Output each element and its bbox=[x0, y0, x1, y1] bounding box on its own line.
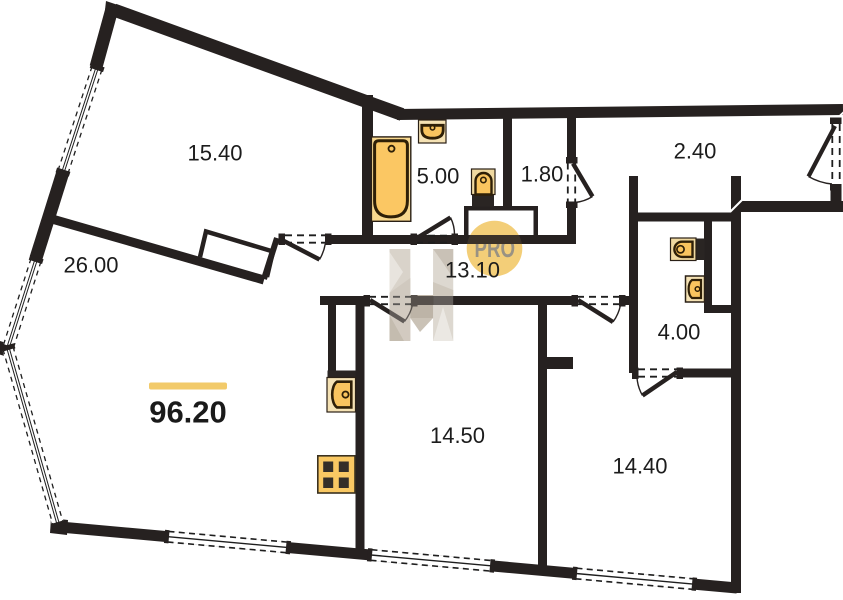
svg-text:5.00: 5.00 bbox=[417, 164, 460, 189]
svg-text:2.40: 2.40 bbox=[674, 139, 717, 164]
svg-text:15.40: 15.40 bbox=[187, 141, 242, 166]
svg-text:13.10: 13.10 bbox=[445, 258, 500, 283]
svg-text:14.40: 14.40 bbox=[612, 454, 667, 479]
svg-text:26.00: 26.00 bbox=[63, 253, 118, 278]
svg-text:96.20: 96.20 bbox=[149, 395, 227, 430]
svg-text:1.80: 1.80 bbox=[521, 162, 564, 187]
svg-text:4.00: 4.00 bbox=[658, 320, 701, 345]
svg-text:14.50: 14.50 bbox=[430, 423, 485, 448]
